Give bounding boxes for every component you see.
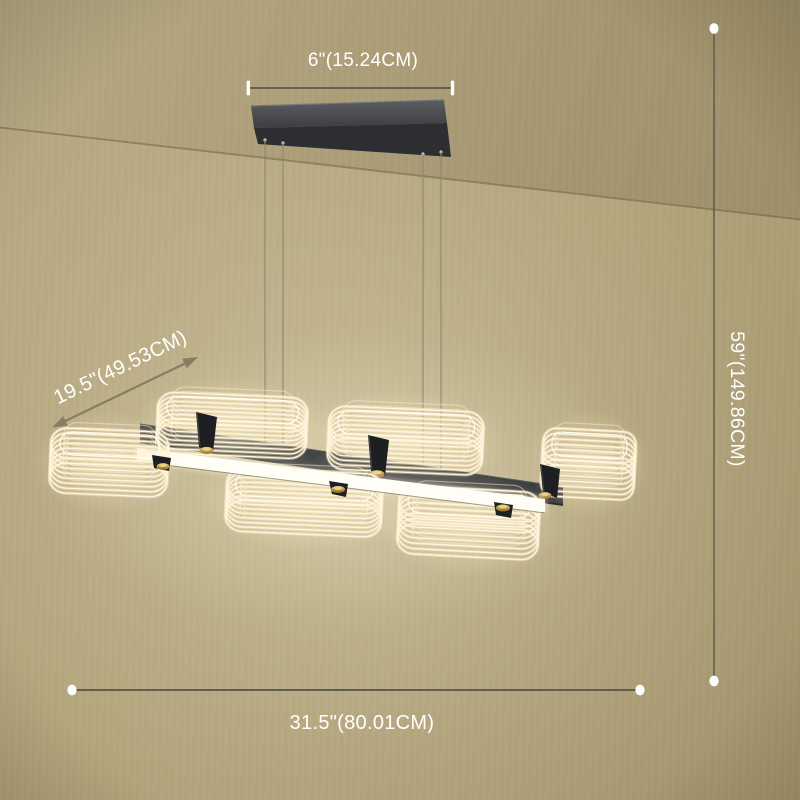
dimension-label-hanging-height: 59"(149.86CM)	[726, 331, 748, 466]
endpoint-dot	[709, 23, 718, 34]
vignette	[0, 0, 800, 800]
dimension-label-fixture-length: 31.5"(80.01CM)	[290, 712, 435, 734]
product-image: 6"(15.24CM) 59"(149.86CM) 31.5"(80.01CM)…	[0, 0, 800, 800]
endpoint-dot	[67, 685, 76, 696]
endpoint-dot	[709, 676, 718, 687]
dimension-tick-left	[247, 81, 250, 96]
endpoint-dot	[635, 685, 644, 696]
scene-canvas: 6"(15.24CM) 59"(149.86CM) 31.5"(80.01CM)…	[0, 0, 800, 800]
dimension-tick-right	[451, 81, 454, 96]
dimension-label-canopy-width: 6"(15.24CM)	[308, 50, 418, 71]
